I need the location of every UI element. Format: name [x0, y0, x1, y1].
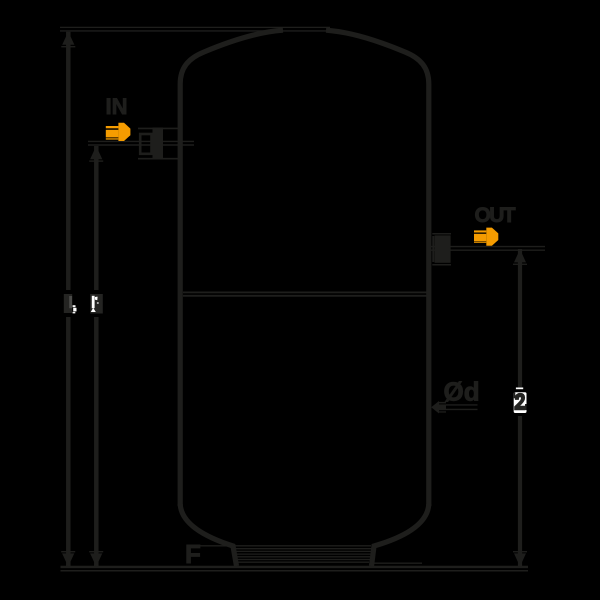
svg-text:Ød: Ød	[444, 377, 480, 407]
svg-text:OUT: OUT	[475, 204, 516, 227]
svg-text:IN: IN	[106, 94, 128, 119]
svg-text:F: F	[185, 539, 201, 569]
